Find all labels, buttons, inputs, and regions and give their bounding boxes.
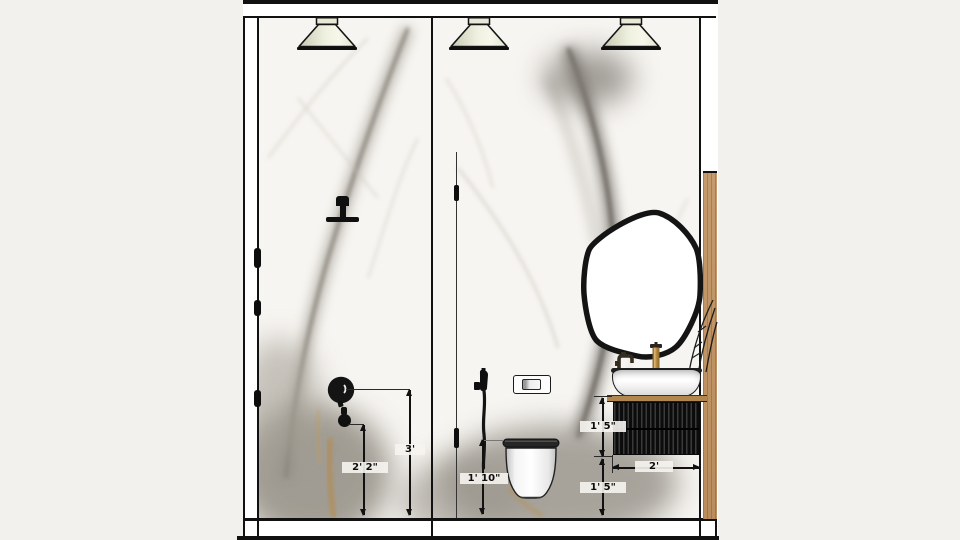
bathroom-elevation-drawing: 3' 2' 2" 1' 10" 1' 5" 2' [0,0,960,540]
hinge-icon [254,390,261,407]
floor-line [244,518,717,521]
glass-partition [456,152,458,518]
hinge-icon [254,300,261,316]
countertop [607,395,707,402]
rain-shower-head-icon [326,217,359,222]
glass-handle [454,185,459,201]
ref-line-toilet [484,440,504,441]
dim-label-1ft10: 1' 10" [460,473,508,484]
pendant-light-icon [297,17,357,51]
shower-mixer-valve-icon [324,374,358,408]
floor-bottom-band [237,536,719,540]
vanity-drawer-divider [614,428,699,430]
vessel-sink-icon [612,369,701,397]
pendant-light-icon [449,17,509,51]
drawing-sheet: 3' 2' 2" 1' 10" 1' 5" 2' [243,0,718,540]
hinge-icon [254,248,261,268]
ref-line-valve [346,389,410,390]
left-inner-wall-line [257,18,259,537]
wall-hung-toilet-icon [501,438,561,501]
dim-label-2ft2: 2' 2" [342,462,388,473]
ceiling-top-band [243,0,718,4]
decor-sketch-icon [686,298,718,376]
pendant-light-icon [601,17,661,51]
dim-label-3ft: 3' [395,444,425,455]
flush-plate-icon [513,375,551,394]
glass-hinge [454,428,459,448]
dim-label-2ft: 2' [635,461,673,472]
fluted-vanity-cabinet [613,402,700,455]
dim-label-1ft5-top: 1' 5" [580,421,626,432]
panel-joint-line [431,18,433,536]
flush-buttons [522,379,541,390]
left-outer-wall-line [243,16,245,539]
dim-label-1ft5-bottom: 1' 5" [580,482,626,493]
hand-sprayer-icon [472,368,496,472]
